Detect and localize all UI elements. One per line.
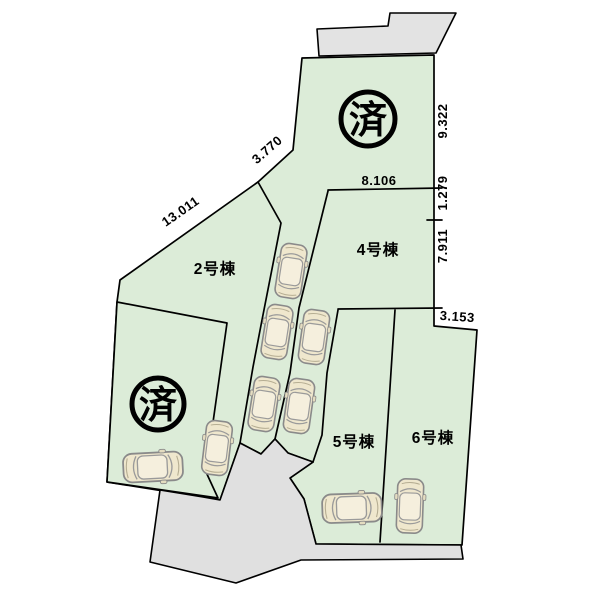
sold-mark-top: 済 xyxy=(341,92,395,146)
car-icon xyxy=(322,490,383,526)
dimension-3153: 3.153 xyxy=(439,308,475,325)
lot-2-label: 2号棟 xyxy=(194,259,237,278)
dimension-9322: 9.322 xyxy=(435,103,450,138)
dimension-7911: 7.911 xyxy=(435,229,450,263)
lot-4-label: 4号棟 xyxy=(357,240,400,259)
car-icon xyxy=(122,448,183,485)
boundary-lot4-bottom xyxy=(338,308,442,309)
sold-mark-bottom: 済 xyxy=(132,378,184,430)
sold-mark-label: 済 xyxy=(349,100,388,142)
site-plan: 済 済 2号棟 4号棟 5号棟 6号棟 13.011 3.770 8.106 9… xyxy=(0,0,600,599)
car-icon xyxy=(393,478,426,533)
dimension-8106: 8.106 xyxy=(361,173,396,188)
lot-5-label: 5号棟 xyxy=(333,432,376,451)
dimension-13011: 13.011 xyxy=(159,193,202,229)
lot-6-label: 6号棟 xyxy=(412,428,455,447)
sold-mark-label: 済 xyxy=(139,385,178,427)
dimension-1279: 1.279 xyxy=(435,175,450,210)
lot-layout-drawing: 済 済 2号棟 4号棟 5号棟 6号棟 13.011 3.770 8.106 9… xyxy=(0,0,600,599)
road-area-top xyxy=(317,13,456,56)
